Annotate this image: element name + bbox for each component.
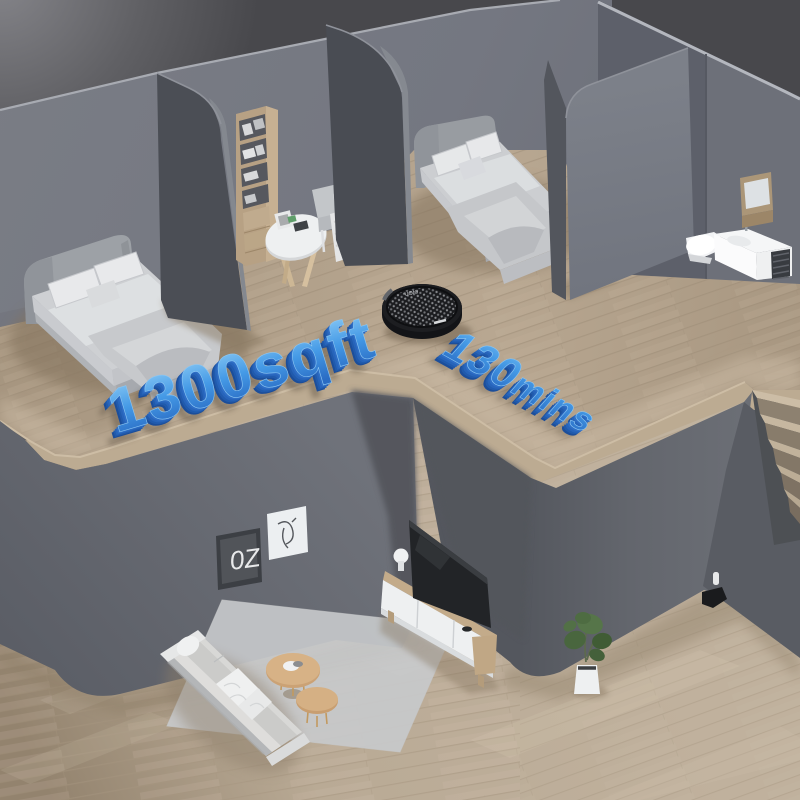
svg-text:0Z: 0Z — [228, 542, 263, 576]
